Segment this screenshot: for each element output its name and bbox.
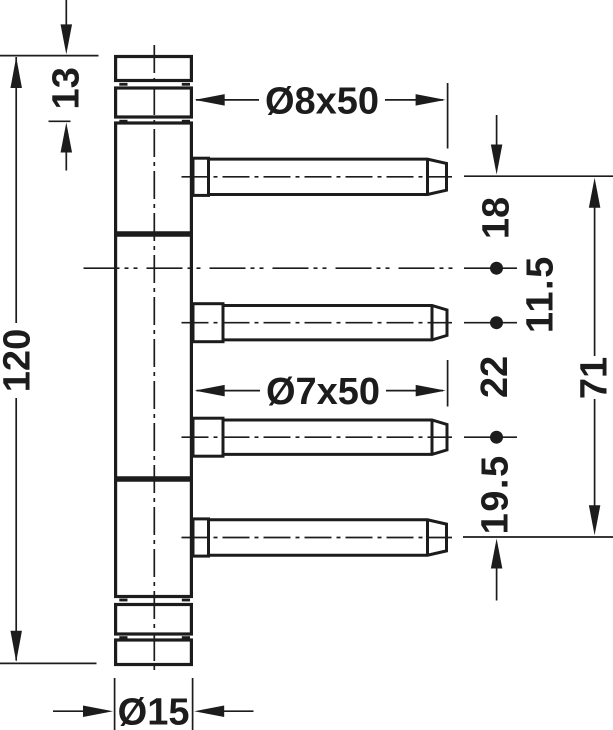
svg-text:71: 71 bbox=[574, 357, 613, 399]
svg-text:22: 22 bbox=[474, 356, 516, 398]
svg-text:19.5: 19.5 bbox=[475, 454, 517, 534]
svg-text:Ø8x50: Ø8x50 bbox=[265, 80, 379, 122]
svg-text:Ø7x50: Ø7x50 bbox=[266, 371, 380, 413]
svg-text:13: 13 bbox=[45, 67, 87, 109]
svg-text:Ø15: Ø15 bbox=[118, 692, 190, 730]
svg-text:11.5: 11.5 bbox=[519, 255, 561, 333]
svg-text:120: 120 bbox=[0, 329, 39, 392]
svg-text:18: 18 bbox=[476, 197, 518, 239]
